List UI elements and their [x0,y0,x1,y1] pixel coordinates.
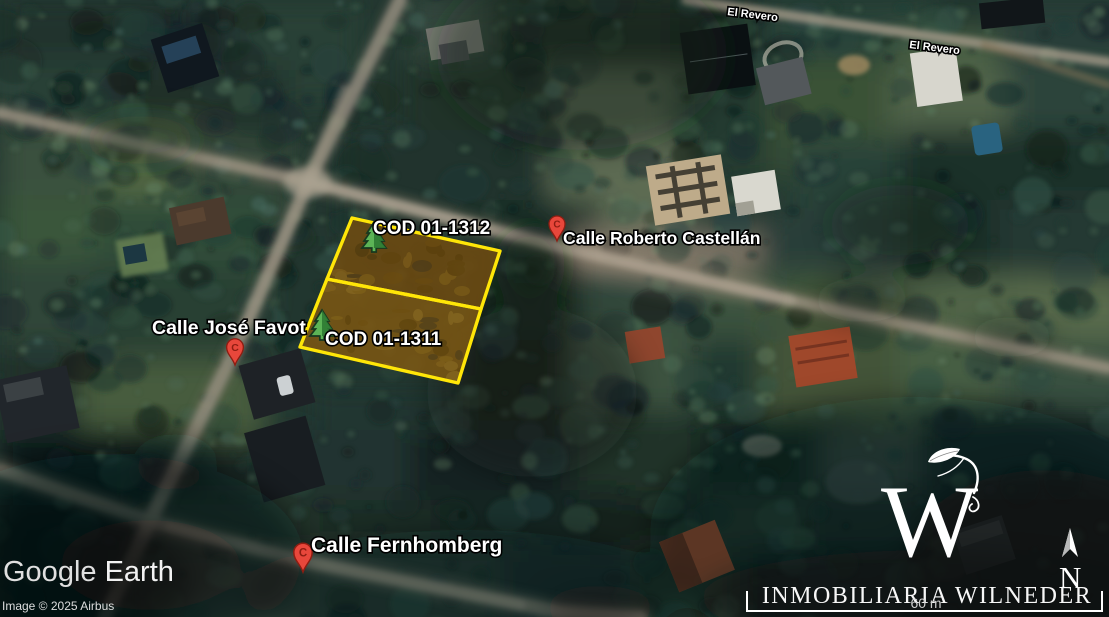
svg-text:C: C [299,548,307,560]
svg-text:N: N [1059,560,1081,595]
svg-text:C: C [553,220,560,231]
svg-text:Google Earth: Google Earth [3,556,174,588]
svg-text:Calle Fernhomberg: Calle Fernhomberg [311,534,502,557]
svg-text:Image © 2025 Airbus: Image © 2025 Airbus [2,599,114,613]
svg-text:C: C [231,342,239,354]
svg-text:Calle Roberto Castellán: Calle Roberto Castellán [563,228,761,248]
svg-text:COD 01-1311: COD 01-1311 [325,329,442,350]
svg-text:W: W [881,465,979,579]
svg-text:Calle José Favot: Calle José Favot [152,317,306,339]
svg-text:COD 01-1312: COD 01-1312 [373,218,490,239]
svg-text:60 m: 60 m [910,595,941,611]
